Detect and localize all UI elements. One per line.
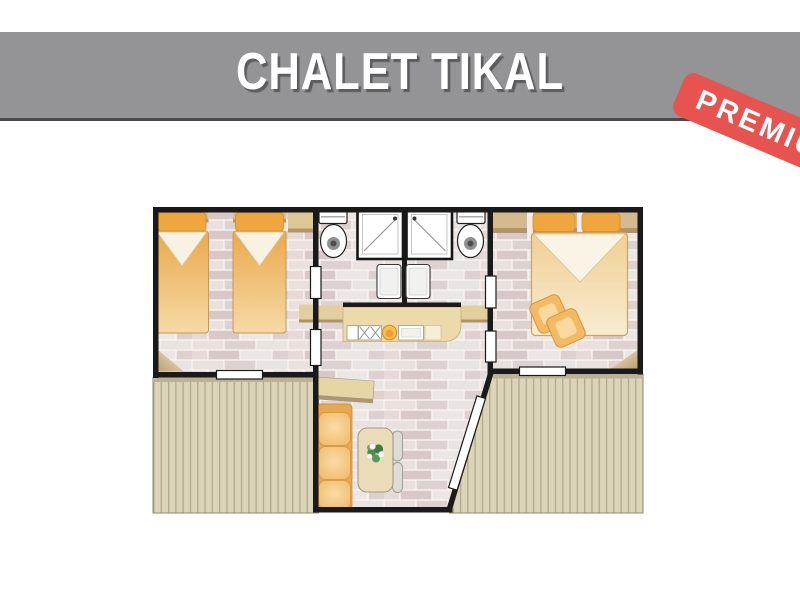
worktop-segment xyxy=(425,326,441,341)
fruit-bowl xyxy=(382,325,396,339)
hob xyxy=(399,326,424,341)
window-twin-bedroom xyxy=(217,371,263,380)
single-bed-2 xyxy=(233,210,286,334)
door-master-bedroom-upper xyxy=(486,276,497,308)
toilet-left xyxy=(319,211,347,258)
shower-right xyxy=(407,210,453,260)
sofa xyxy=(316,404,353,510)
kitchen-cabinet xyxy=(347,326,358,341)
chair xyxy=(393,463,403,493)
sink-drainer xyxy=(359,326,382,341)
bedside-cabinet-shadow xyxy=(299,320,313,323)
pillow xyxy=(533,213,575,232)
wardrobe xyxy=(288,210,313,233)
shower-left xyxy=(358,210,404,260)
kitchen-front-wall xyxy=(343,303,461,308)
single-bed-1 xyxy=(156,210,209,334)
door-twin-bedroom-upper xyxy=(311,267,322,299)
terrace-left xyxy=(153,378,319,514)
entry-cabinet xyxy=(316,377,374,403)
pillow xyxy=(582,213,620,232)
chair xyxy=(393,431,403,461)
page: CHALET TIKAL PREMIUM xyxy=(0,0,800,600)
floor-plan xyxy=(0,0,800,600)
toilet-right xyxy=(457,211,485,258)
window-master-bedroom xyxy=(520,367,566,376)
door-twin-bedroom-lower xyxy=(311,330,322,366)
washbasin-left xyxy=(377,265,401,299)
washbasin-right xyxy=(406,265,430,299)
door-master-bedroom-lower xyxy=(486,331,497,362)
